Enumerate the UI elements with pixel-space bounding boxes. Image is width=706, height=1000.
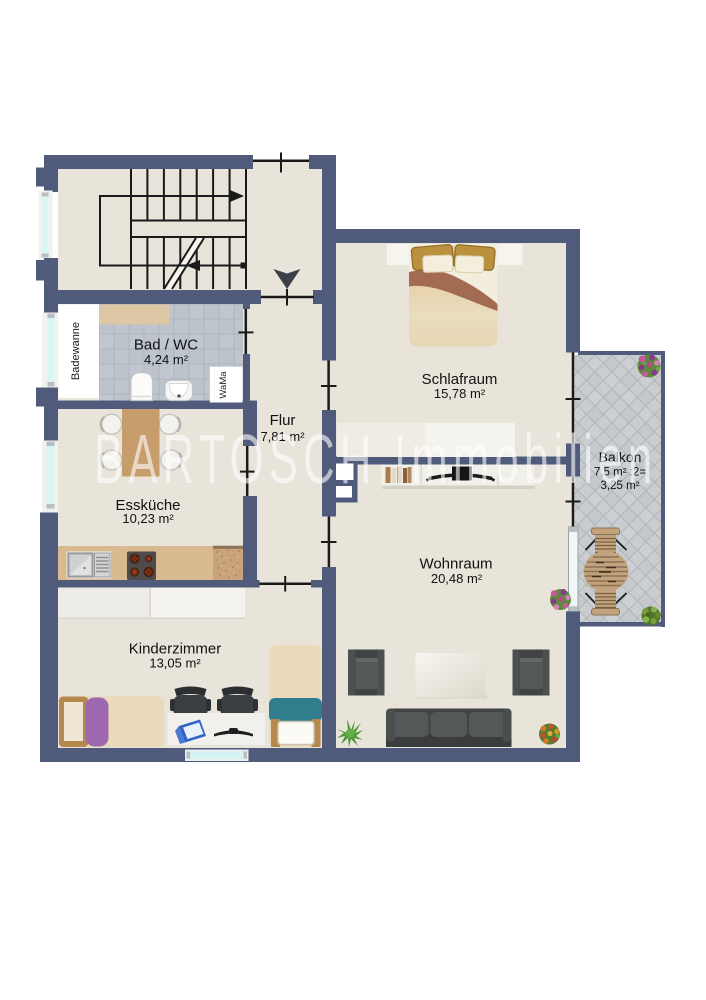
- svg-text:20,48 m²: 20,48 m²: [431, 571, 483, 586]
- svg-text:WaMa: WaMa: [218, 371, 229, 399]
- svg-text:15,78 m²: 15,78 m²: [434, 386, 486, 401]
- svg-text:BARTOSCH Immobilien: BARTOSCH Immobilien: [94, 421, 657, 499]
- svg-text:4,24 m²: 4,24 m²: [144, 352, 189, 367]
- svg-text:Wohnraum: Wohnraum: [419, 556, 492, 573]
- svg-text:Badewanne: Badewanne: [70, 322, 82, 380]
- svg-text:Bad / WC: Bad / WC: [134, 337, 198, 354]
- svg-text:13,05 m²: 13,05 m²: [149, 656, 201, 671]
- svg-text:10,23 m²: 10,23 m²: [122, 511, 174, 526]
